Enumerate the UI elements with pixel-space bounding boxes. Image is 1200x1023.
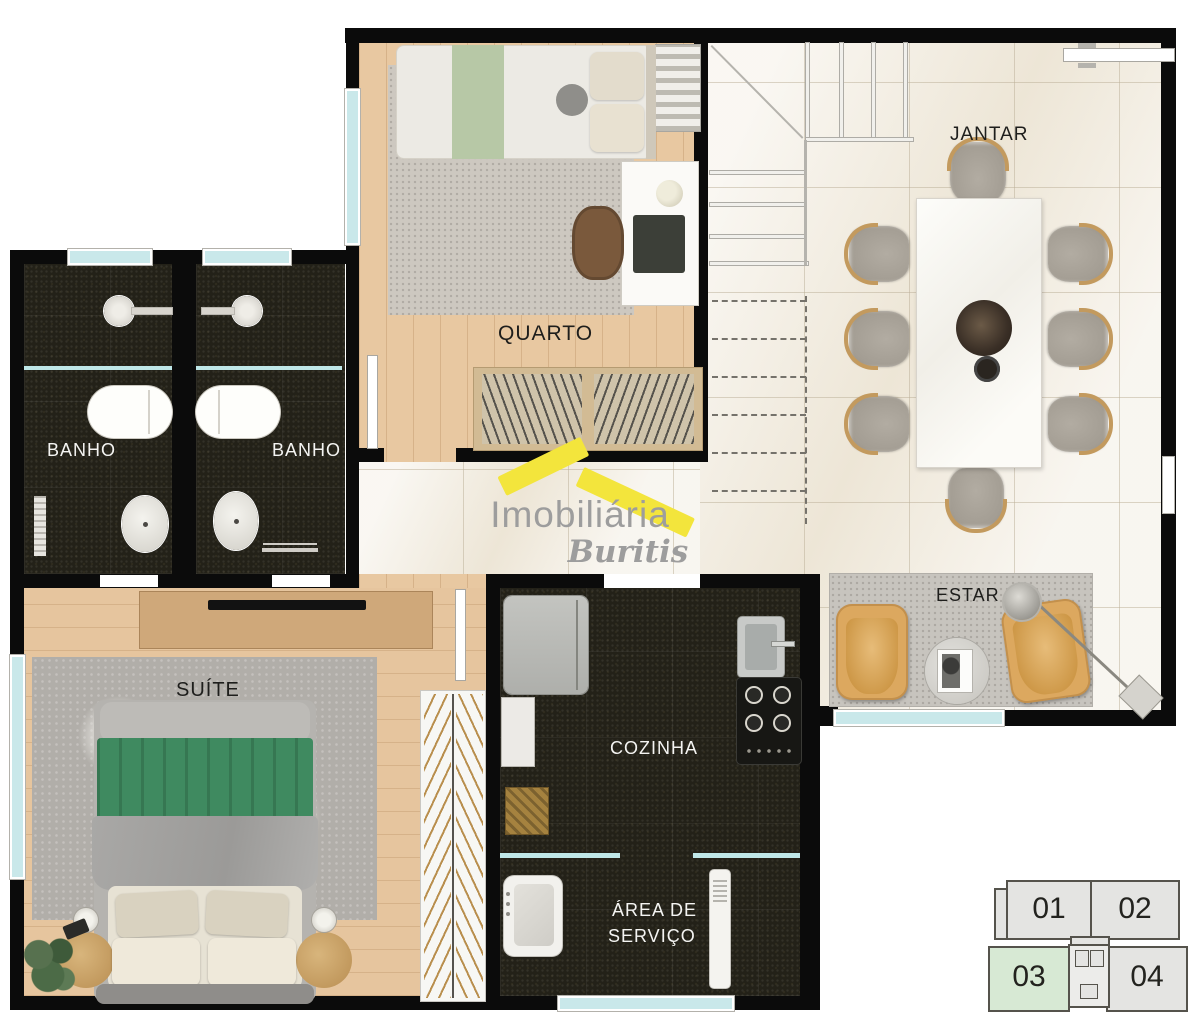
washbasin [122,496,168,552]
dining-chair [950,142,1006,202]
keyplan-stairwell [1080,984,1098,999]
kitchen-glass-partition [500,853,620,858]
stair-tread [806,43,809,140]
green-throw-blanket [97,738,313,820]
double-bed-foot-roll [100,702,310,742]
wall [346,448,384,462]
dining-chair [1048,311,1108,367]
pillow [208,938,296,986]
window [12,657,23,877]
wall [172,250,196,588]
pillow [590,104,644,152]
stair-projection-dash [712,376,806,378]
wall [345,28,1176,43]
keyplan-number-04: 04 [1106,960,1188,994]
gray-duvet [92,816,318,890]
floor-plan: QUARTO JANTAR BANHO BANHO SUÍTE COZINHA … [0,0,1200,1023]
desk-chair [572,206,624,280]
room-label-area-servico-2: SERVIÇO [608,926,696,947]
round-cushion [556,84,588,116]
wall [814,706,838,726]
entry-door-hinge [1078,43,1096,48]
closet-hangers [424,694,451,998]
burner-icon [773,686,791,704]
room-label-quarto: QUARTO [498,322,593,346]
keyplan-number-03: 03 [988,960,1070,994]
dining-chair [849,226,909,282]
stair-projection-dash [712,300,806,302]
table-centerpiece-plant [956,300,1012,356]
bathtub-divider [148,390,150,434]
laundry-tank-basin [514,884,554,946]
stair-projection-dash [805,296,807,524]
stair-tread [710,171,806,174]
entry-door-hinge [1078,63,1096,68]
closet-rod [452,694,454,998]
room-label-banho-right: BANHO [272,440,341,461]
stair-tread [710,203,806,206]
room-label-area-servico-1: ÁREA DE [612,900,697,921]
single-bed-headboard [646,45,656,159]
logo-text-buritis: Buritis [430,534,730,570]
stair-projection-dash [712,338,806,340]
room-label-suite: SUÍTE [176,679,240,702]
window [347,91,358,243]
desk-lamp [656,180,683,207]
bookshelf [656,45,700,131]
armchair [836,604,908,700]
wall-recess [1163,457,1174,513]
wall [486,574,500,1010]
stair-tread [840,43,843,140]
bathtub [88,386,172,438]
towel-bar [262,548,318,552]
pillow [590,52,644,100]
shower-arm [202,308,234,314]
dining-chair [948,468,1004,528]
kitchen-sink-basin [745,624,777,670]
stair-tread [904,43,907,140]
single-bed-green-runner [452,45,504,159]
pillow [115,890,199,938]
magazine-cover [942,654,960,688]
window [560,998,732,1009]
door-opening [272,575,330,587]
window [836,712,1002,724]
cooktop-knobs [744,748,796,754]
room-label-jantar: JANTAR [950,124,1028,146]
dining-chair [849,396,909,452]
shower-head-icon [104,296,134,326]
entry-door [1064,49,1174,61]
wall [346,243,359,588]
headboard [96,984,314,1004]
stair-rail [804,140,807,265]
pillow [112,938,200,986]
stair-bottom-edge [710,262,808,265]
wall [10,588,24,657]
dining-chair [849,311,909,367]
wall [1161,43,1176,726]
closet-hangers [456,694,483,998]
keyplan-number-02: 02 [1090,892,1180,926]
burner-icon [773,714,791,732]
suite-door-leaf [456,590,465,680]
shower-glass [196,366,342,370]
wall [346,43,359,91]
shower-head-icon [232,296,262,326]
stair-tread [710,235,806,238]
washing-machine-panel [713,880,727,902]
stair-landing-edge [806,138,913,141]
keyplan-elevator [1090,950,1104,967]
burner-icon [745,714,763,732]
kitchen-counter [502,698,534,766]
plant [20,930,82,1000]
refrigerator-door-line [576,600,578,690]
shower-arm [132,308,172,314]
stair-tread [872,43,875,140]
bedroom-door-leaf [368,356,377,448]
keyplan-number-01: 01 [1006,892,1092,926]
tv [208,600,366,610]
kitchen-glass-partition [693,853,800,858]
door-opening [100,575,158,587]
nightstand [296,932,352,988]
wall [10,250,24,588]
basket [506,788,548,834]
pillow [205,890,289,938]
brand-logo: Imobiliária Buritis [430,448,730,578]
room-label-banho-left: BANHO [47,440,116,461]
table-lamp [312,908,336,932]
burner-icon [745,686,763,704]
bathtub-divider [218,390,220,434]
wardrobe-hangers [594,374,694,444]
dining-chair [1048,396,1108,452]
shower-glass [24,366,172,370]
towel-rail [34,496,46,556]
wardrobe-hangers [482,374,582,444]
window [205,251,289,263]
stair-projection-dash [712,414,806,416]
room-label-cozinha: COZINHA [610,738,698,759]
bathtub [196,386,280,438]
laptop [633,215,685,273]
table-centerpiece-vase [974,356,1000,382]
tank-taps [506,892,510,896]
keyplan-elevator [1075,950,1089,967]
faucet [772,642,794,646]
wall [800,574,820,1010]
floor-lamp-shade [1004,584,1040,620]
room-label-estar: ESTAR [936,585,1000,606]
washbasin [214,492,258,550]
dining-chair [1048,226,1108,282]
window [70,251,150,263]
logo-text-imobiliaria: Imobiliária [430,494,730,536]
